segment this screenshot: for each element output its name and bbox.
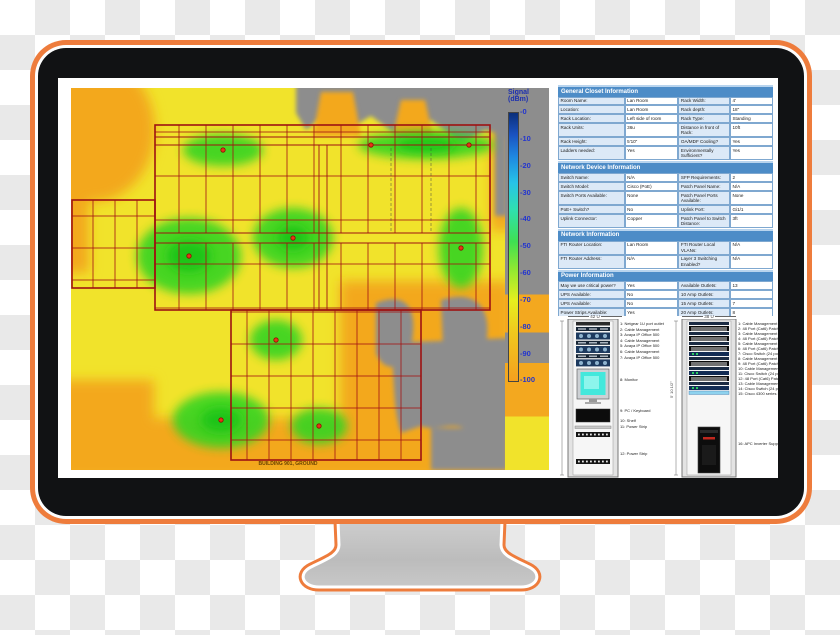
table-value-cell: Lan Room	[625, 105, 679, 114]
table-label-cell: UPS Available:	[558, 290, 625, 299]
table-value-cell: N/A	[625, 173, 679, 182]
table-value-cell: No	[625, 205, 679, 214]
rack-item-label: 15: Cisco 4300 series Router	[738, 392, 778, 397]
signal-legend: Signal (dBm) -0-10-20-30-40-50-60-70-80-…	[505, 88, 549, 470]
table-value-cell: N/A	[625, 255, 679, 269]
legend-tick: -20	[520, 162, 535, 170]
power-info-table: Power InformationMay we use critical pow…	[558, 270, 773, 316]
table-label-cell: Patch Panel Ports Available:	[678, 191, 730, 205]
table-label-cell: FTI Router Location:	[558, 241, 625, 255]
table-label-cell: SFP Requirements:	[678, 173, 730, 182]
table-value-cell: Lan Room	[625, 97, 679, 106]
rack-item-label: 13: Cable Management	[738, 382, 778, 387]
legend-tick: -0	[520, 108, 535, 116]
rack-item-label: 8: Monitor	[620, 378, 664, 383]
table-label-cell: FTI Router Local VLANs:	[678, 241, 730, 255]
table-value-cell: No	[625, 299, 679, 308]
table-row: FTI Router Location:Lan RoomFTI Router L…	[558, 241, 773, 255]
table-value-cell: Left side of room	[625, 114, 679, 123]
rack-item-label: 3: Avaya IP Office 500	[620, 333, 664, 338]
rack-item-label: 2: Cable Management	[620, 328, 664, 333]
legend-title: Signal (dBm)	[505, 88, 549, 104]
table-value-cell: 3ft	[730, 214, 773, 228]
rack-42u-item-labels: 1: Netgear 1U port outlet2: Cable Manage…	[620, 319, 664, 478]
table-section-header: Power Information	[558, 270, 773, 282]
rack-item-label: 9: PC / Keyboard	[620, 409, 664, 414]
rack-item-label: 5: Avaya IP Office 500	[620, 344, 664, 349]
screen: BUILDING 901, GROUND Signal (dBm) -0-10-…	[58, 78, 778, 478]
table-value-cell: 7	[730, 299, 773, 308]
rack-item-label: 6: Cable Management	[620, 350, 664, 355]
rack-item-label: 5: Cable Management	[738, 342, 778, 347]
table-label-cell: Rack depth:	[678, 105, 730, 114]
table-label-cell: Uplink Connector:	[558, 214, 625, 228]
table-value-cell: Yes	[625, 146, 679, 160]
table-row: Switch Name:N/ASFP Requirements:2	[558, 173, 773, 182]
rack-item-label: 8: Cable Management	[738, 357, 778, 362]
rack-38u-height-dimension: 5' 10 1/2"	[669, 381, 674, 398]
table-value-cell: Cisco (PoE)	[625, 182, 679, 191]
rack-item-label: 12: 48 Port (Cat6) Patch Panel	[738, 377, 778, 382]
table-section-header: General Closet Information	[558, 85, 773, 97]
rack-item-label: 4: Cable Management	[620, 339, 664, 344]
rack-item-label: 11: Cisco Switch (24 port 2960)	[738, 372, 778, 377]
table-section-header: Network Device Information	[558, 161, 773, 173]
table-label-cell: 10 Amp Outlets:	[678, 290, 730, 299]
rack-42u-diagram	[558, 319, 620, 478]
table-row: Location:Lan RoomRack depth:18"	[558, 105, 773, 114]
table-label-cell: Rack Units:	[558, 123, 625, 137]
table-value-cell: None	[625, 191, 679, 205]
table-value-cell: Copper	[625, 214, 679, 228]
rack-42u: 42 U	[558, 314, 664, 478]
rack-item-label: 10: Cable Management	[738, 367, 778, 372]
table-value-cell: 2	[730, 173, 773, 182]
legend-tick: -40	[520, 215, 535, 223]
table-value-cell: 18"	[730, 105, 773, 114]
table-label-cell: FTI Router Address:	[558, 255, 625, 269]
table-row: Switch Model:Cisco (PoE)Patch Panel Name…	[558, 182, 773, 191]
table-label-cell: Switch Model:	[558, 182, 625, 191]
table-label-cell: Patch Panel Name:	[678, 182, 730, 191]
table-label-cell: Rack Location:	[558, 114, 625, 123]
legend-tick: -100	[520, 376, 535, 384]
legend-ticks: -0-10-20-30-40-50-60-70-80-90-100	[520, 108, 535, 384]
table-label-cell: Patch Panel to Switch Distance:	[678, 214, 730, 228]
table-value-cell: Yes	[730, 146, 773, 160]
table-value-cell: Standing	[730, 114, 773, 123]
monitor-bezel: BUILDING 901, GROUND Signal (dBm) -0-10-…	[38, 48, 804, 516]
monitor-white-trim: BUILDING 901, GROUND Signal (dBm) -0-10-…	[35, 45, 807, 519]
rack-item-label: 9: 48 Port (Cat6) Patch Panel	[738, 362, 778, 367]
table-label-cell: Ladders needed:	[558, 146, 625, 160]
general-closet-info-table: General Closet InformationRoom Name:Lan …	[558, 85, 773, 160]
rack-item-label: 7: Avaya IP Office 500	[620, 356, 664, 361]
table-label-cell: PoE+ Switch?	[558, 205, 625, 214]
table-label-cell: Rack Height:	[558, 137, 625, 146]
table-value-cell: N/A	[730, 255, 773, 269]
wifi-heatmap-floorplan: BUILDING 901, GROUND	[71, 88, 505, 470]
rack-38u: 38 U 5' 10 1/2"	[672, 314, 778, 478]
rack-item-label: 7: Cisco Switch (24 port 3850)	[738, 352, 778, 357]
table-label-cell: Rack Type:	[678, 114, 730, 123]
table-label-cell: UPS Available:	[558, 299, 625, 308]
table-row: Switch Ports Available:NonePatch Panel P…	[558, 191, 773, 205]
rack-38u-item-labels: 1: Cable Management2: 48 Port (Cat6) Pat…	[738, 319, 778, 478]
table-value-cell: 13	[730, 281, 773, 290]
table-value-cell	[730, 290, 773, 299]
legend-tick: -90	[520, 350, 535, 358]
table-value-cell: None	[730, 191, 773, 205]
rack-item-label: 1: Cable Management	[738, 322, 778, 327]
legend-tick: -60	[520, 269, 535, 277]
rack-monitor	[577, 369, 609, 404]
table-label-cell: Room Name:	[558, 97, 625, 106]
table-label-cell: 15 Amp Outlets:	[678, 299, 730, 308]
rack-item-label: 11: Power Strip	[620, 425, 664, 430]
table-value-cell: 10ft	[730, 123, 773, 137]
table-value-cell: Yes	[730, 137, 773, 146]
rack-item-label: 6: 48 Port (Cat6) Patch Panel	[738, 347, 778, 352]
table-label-cell: Rack Width:	[678, 97, 730, 106]
table-row: May we use critical power?YesAvailable O…	[558, 281, 773, 290]
table-row: FTI Router Address:N/ALayer 3 Switching …	[558, 255, 773, 269]
rack-item-label: 2: 48 Port (Cat6) Patch Panel	[738, 327, 778, 332]
monitor-frame: BUILDING 901, GROUND Signal (dBm) -0-10-…	[30, 40, 812, 524]
legend-tick: -70	[520, 296, 535, 304]
table-value-cell: N/A	[730, 241, 773, 255]
rack-38u-diagram	[672, 319, 738, 478]
legend-colorbar	[508, 112, 519, 382]
legend-tick: -30	[520, 189, 535, 197]
table-row: UPS Available:No10 Amp Outlets:	[558, 290, 773, 299]
rack-item-label: 1: Netgear 1U port outlet	[620, 322, 664, 327]
table-row: Rack Location:Left side of roomRack Type…	[558, 114, 773, 123]
network-info-table: Network InformationFTI Router Location:L…	[558, 229, 773, 269]
table-value-cell: N/A	[730, 182, 773, 191]
table-label-cell: Uplink Port:	[678, 205, 730, 214]
table-label-cell: Distance in front of Rack:	[678, 123, 730, 137]
table-value-cell: No	[625, 290, 679, 299]
legend-tick: -80	[520, 323, 535, 331]
table-section-header: Network Information	[558, 229, 773, 241]
rack-elevation-section: 42 U	[558, 314, 776, 478]
table-value-cell: 5'10"	[625, 137, 679, 146]
table-label-cell: Environmentally Sufficient?	[678, 146, 730, 160]
table-row: Room Name:Lan RoomRack Width:4'	[558, 97, 773, 106]
table-row: PoE+ Switch?NoUplink Port:Gi1/1	[558, 205, 773, 214]
table-value-cell: 36u	[625, 123, 679, 137]
rack-item-label: 12: Power Strip	[620, 452, 664, 457]
table-value-cell: Gi1/1	[730, 205, 773, 214]
table-label-cell: Layer 3 Switching Enabled?	[678, 255, 730, 269]
table-row: Rack Units:36uDistance in front of Rack:…	[558, 123, 773, 137]
table-label-cell: Available Outlets:	[678, 281, 730, 290]
table-value-cell: Yes	[625, 281, 679, 290]
table-row: Ladders needed:YesEnvironmentally Suffic…	[558, 146, 773, 160]
legend-tick: -50	[520, 242, 535, 250]
table-label-cell: OA/MDF Cooling?	[678, 137, 730, 146]
table-value-cell: Lan Room	[625, 241, 679, 255]
transparent-checkerboard-background: BUILDING 901, GROUND Signal (dBm) -0-10-…	[0, 0, 840, 635]
table-label-cell: Location:	[558, 105, 625, 114]
rack-ups-tower	[698, 427, 720, 473]
rack-item-label: 3: Cable Management	[738, 332, 778, 337]
table-label-cell: Switch Name:	[558, 173, 625, 182]
closet-info-tables: General Closet InformationRoom Name:Lan …	[558, 85, 773, 316]
network-device-info-table: Network Device InformationSwitch Name:N/…	[558, 161, 773, 228]
table-row: Rack Height:5'10"OA/MDF Cooling?Yes	[558, 137, 773, 146]
table-value-cell: 4'	[730, 97, 773, 106]
rack-item-label: 14: Cisco Switch (24 port 2960)	[738, 387, 778, 392]
legend-tick: -10	[520, 135, 535, 143]
table-label-cell: May we use critical power?	[558, 281, 625, 290]
rack-item-label: 4: 48 Port (Cat6) Patch Panel	[738, 337, 778, 342]
rack-item-label: 10: Shelf	[620, 419, 664, 424]
table-label-cell: Switch Ports Available:	[558, 191, 625, 205]
rack-item-label: 16: APC Inverter Support	[738, 442, 778, 447]
table-row: UPS Available:No15 Amp Outlets:7	[558, 299, 773, 308]
floorplan-caption: BUILDING 901, GROUND	[259, 461, 318, 467]
table-row: Uplink Connector:CopperPatch Panel to Sw…	[558, 214, 773, 228]
